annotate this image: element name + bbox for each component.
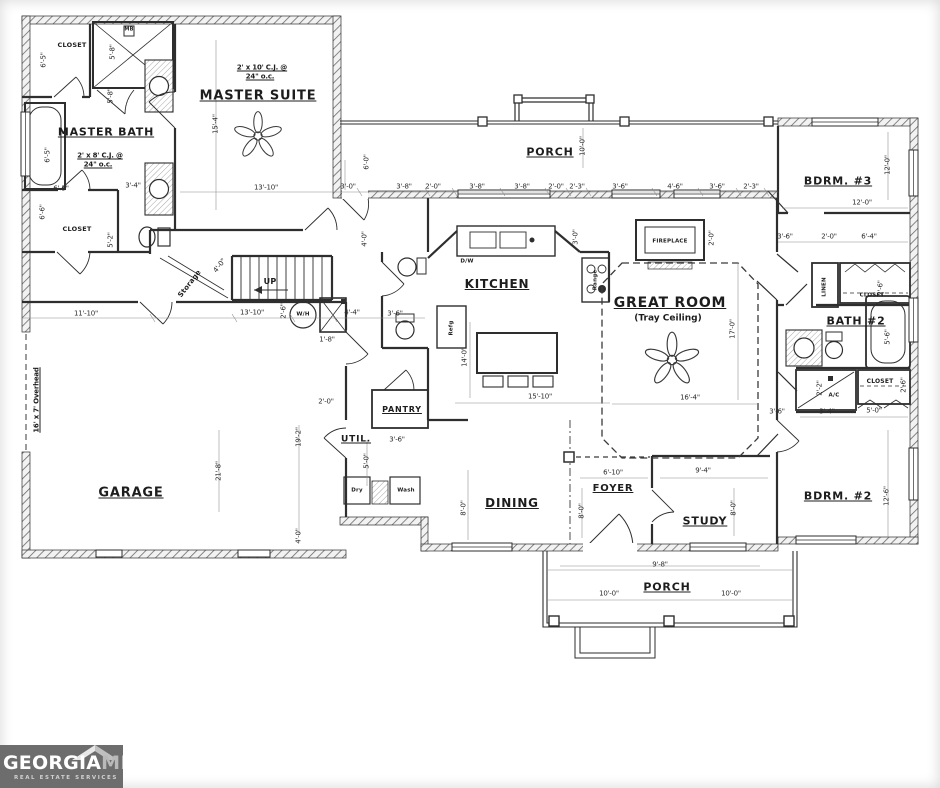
bottom-porch-structure [543, 551, 797, 658]
master-suite-fan-icon [234, 112, 283, 159]
georgiamls-logo: GEORGIAMLS REAL ESTATE SERVICES [0, 745, 123, 788]
fixtures [25, 22, 910, 504]
logo-wordmark: GEORGIAMLS [3, 752, 123, 774]
logo-text-mls: MLS [101, 752, 123, 774]
foyer-column [564, 452, 574, 462]
doors [54, 77, 807, 548]
floor-plan-page: MASTER SUITEMASTER BATHKITCHENGREAT ROOM… [0, 0, 940, 788]
logo-tagline: REAL ESTATE SERVICES [14, 775, 118, 781]
logo-text-georgia: GEORGIA [3, 752, 101, 774]
floor-plan-drawing [0, 0, 940, 788]
great-room-fan-icon [644, 332, 700, 385]
top-porch-structure [340, 95, 778, 126]
dashed-lines [26, 263, 758, 544]
staircase [160, 256, 332, 300]
